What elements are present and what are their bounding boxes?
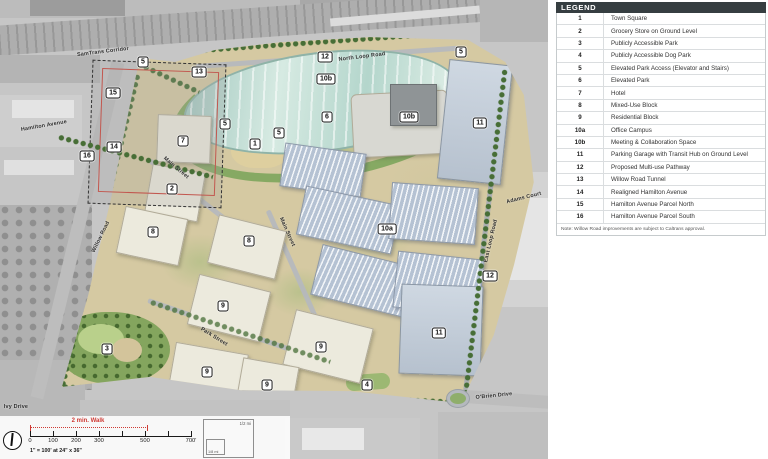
map-marker-9: 9 [202, 367, 213, 378]
walk-time-label: 2 min. Walk [72, 418, 105, 424]
legend-label: Proposed Multi-use Pathway [604, 162, 690, 173]
legend-key: 8 [557, 100, 604, 111]
map-marker-10b: 10b [399, 112, 418, 123]
legend-row: 14Realigned Hamilton Avenue [557, 185, 765, 197]
map-marker-2: 2 [167, 184, 178, 195]
legend-label: Residential Block [604, 112, 658, 123]
legend-row: 5Elevated Park Access (Elevator and Stai… [557, 62, 765, 74]
legend-label: Parking Garage with Transit Hub on Groun… [604, 149, 748, 160]
legend-label: Elevated Park [604, 75, 650, 86]
scale-tick: 200 [71, 438, 81, 444]
legend-row: 12Proposed Multi-use Pathway [557, 161, 765, 173]
scale-tick: 300 [94, 438, 104, 444]
aerial-block [0, 55, 100, 83]
legend-label: Elevated Park Access (Elevator and Stair… [604, 63, 729, 74]
site-plan-page: 5131514161210b56557110b1128810a129999341… [0, 0, 768, 459]
legend-label: Realigned Hamilton Avenue [604, 186, 687, 197]
legend-key: 9 [557, 112, 604, 123]
radius-inset-diagram: 1/2 mi 1/8 mi [203, 419, 254, 458]
legend-key: 11 [557, 149, 604, 160]
legend-label: Hamilton Avenue Parcel South [604, 211, 695, 222]
scale-tick: 0 [28, 438, 31, 444]
aerial-building [12, 100, 74, 118]
scale-caption: 1" = 100' at 24" x 36" [30, 448, 82, 454]
map-marker-9: 9 [316, 342, 327, 353]
map-marker-1: 1 [250, 139, 261, 150]
legend-key: 16 [557, 211, 604, 222]
legend-row: 1Town Square [557, 13, 765, 24]
aerial-parking-lot [438, 412, 548, 459]
map-marker-11: 11 [432, 328, 446, 339]
legend-key: 15 [557, 199, 604, 210]
roundabout [446, 389, 470, 408]
legend-label: Publicly Accessible Dog Park [604, 50, 691, 61]
legend-row: 13Willow Road Tunnel [557, 173, 765, 185]
legend-key: 6 [557, 75, 604, 86]
map-marker-9: 9 [218, 301, 229, 312]
legend-key: 13 [557, 174, 604, 185]
scale-tick: 500 [140, 438, 150, 444]
legend-key: 10a [557, 125, 604, 136]
legend-label: Willow Road Tunnel [604, 174, 666, 185]
legend-row: 9Residential Block [557, 111, 765, 123]
legend-key: 1 [557, 13, 604, 24]
legend-row: 8Mixed-Use Block [557, 99, 765, 111]
map-marker-12: 12 [318, 52, 333, 63]
map-marker-14: 14 [107, 142, 122, 153]
map-marker-5: 5 [220, 119, 231, 130]
legend-row: 11Parking Garage with Transit Hub on Gro… [557, 148, 765, 160]
map-marker-12: 12 [483, 271, 498, 282]
map-marker-9: 9 [262, 380, 273, 391]
map-marker-6: 6 [322, 112, 333, 123]
map-marker-5: 5 [274, 128, 285, 139]
map-marker-7: 7 [178, 136, 189, 147]
legend-row: 4Publicly Accessible Dog Park [557, 49, 765, 61]
scale-ruler [30, 431, 192, 437]
legend-label: Hamilton Avenue Parcel North [604, 199, 694, 210]
legend-key: 14 [557, 186, 604, 197]
legend-key: 12 [557, 162, 604, 173]
walk-distance-line [30, 427, 148, 428]
map-marker-4: 4 [362, 380, 373, 391]
legend-label: Town Square [604, 13, 647, 24]
site-plan-map: 5131514161210b56557110b1128810a129999341… [0, 0, 548, 459]
legend-rows: 1Town Square2Grocery Store on Ground Lev… [557, 13, 765, 223]
half-mile-label: 1/2 mi [240, 421, 251, 426]
aerial-building [4, 160, 74, 175]
legend-key: 3 [557, 38, 604, 49]
map-marker-5: 5 [138, 57, 149, 68]
map-marker-16: 16 [80, 151, 95, 162]
legend-row: 16Hamilton Avenue Parcel South [557, 210, 765, 222]
map-marker-15: 15 [106, 88, 121, 99]
office-building [296, 185, 401, 254]
map-marker-8: 8 [244, 236, 255, 247]
eighth-mile-square: 1/8 mi [206, 439, 225, 455]
park-path-circle [112, 338, 142, 362]
map-marker-10a: 10a [378, 224, 397, 235]
road-label: Ivy Drive [4, 404, 28, 410]
north-needle [10, 433, 14, 446]
legend-key: 10b [557, 137, 604, 148]
scale-tick: 100 [48, 438, 58, 444]
aerial-block [30, 0, 125, 16]
legend-key: 7 [557, 87, 604, 98]
legend-label: Grocery Store on Ground Level [604, 25, 697, 36]
legend-title: LEGEND [556, 2, 766, 13]
north-arrow [3, 431, 22, 450]
legend-row: 7Hotel [557, 86, 765, 98]
map-marker-8: 8 [148, 227, 159, 238]
legend-row: 15Hamilton Avenue Parcel North [557, 198, 765, 210]
legend-key: 5 [557, 63, 604, 74]
aerial-block [480, 0, 548, 42]
legend-label: Hotel [604, 87, 625, 98]
legend-panel: LEGEND 1Town Square2Grocery Store on Gro… [556, 2, 766, 236]
map-marker-11: 11 [473, 118, 487, 129]
legend-row: 3Publicly Accessible Park [557, 37, 765, 49]
legend-row: 10bMeeting & Collaboration Space [557, 136, 765, 148]
map-marker-5: 5 [456, 47, 467, 58]
legend-label: Meeting & Collaboration Space [604, 137, 696, 148]
scale-tick: 700' [186, 438, 197, 444]
map-marker-10b: 10b [316, 74, 335, 85]
legend-key: 2 [557, 25, 604, 36]
map-marker-13: 13 [192, 67, 207, 78]
map-marker-3: 3 [102, 344, 113, 355]
legend-row: 10aOffice Campus [557, 124, 765, 136]
legend-row: 6Elevated Park [557, 74, 765, 86]
legend-key: 4 [557, 50, 604, 61]
legend-label: Office Campus [604, 125, 652, 136]
legend-row: 2Grocery Store on Ground Level [557, 24, 765, 36]
eighth-mile-label: 1/8 mi [208, 450, 218, 454]
legend-note: Note: Willow Road improvements are subje… [557, 223, 765, 235]
legend-table: 1Town Square2Grocery Store on Ground Lev… [556, 13, 766, 236]
office-building [388, 182, 479, 245]
aerial-building [302, 428, 364, 450]
legend-label: Mixed-Use Block [604, 100, 657, 111]
legend-label: Publicly Accessible Park [604, 38, 678, 49]
